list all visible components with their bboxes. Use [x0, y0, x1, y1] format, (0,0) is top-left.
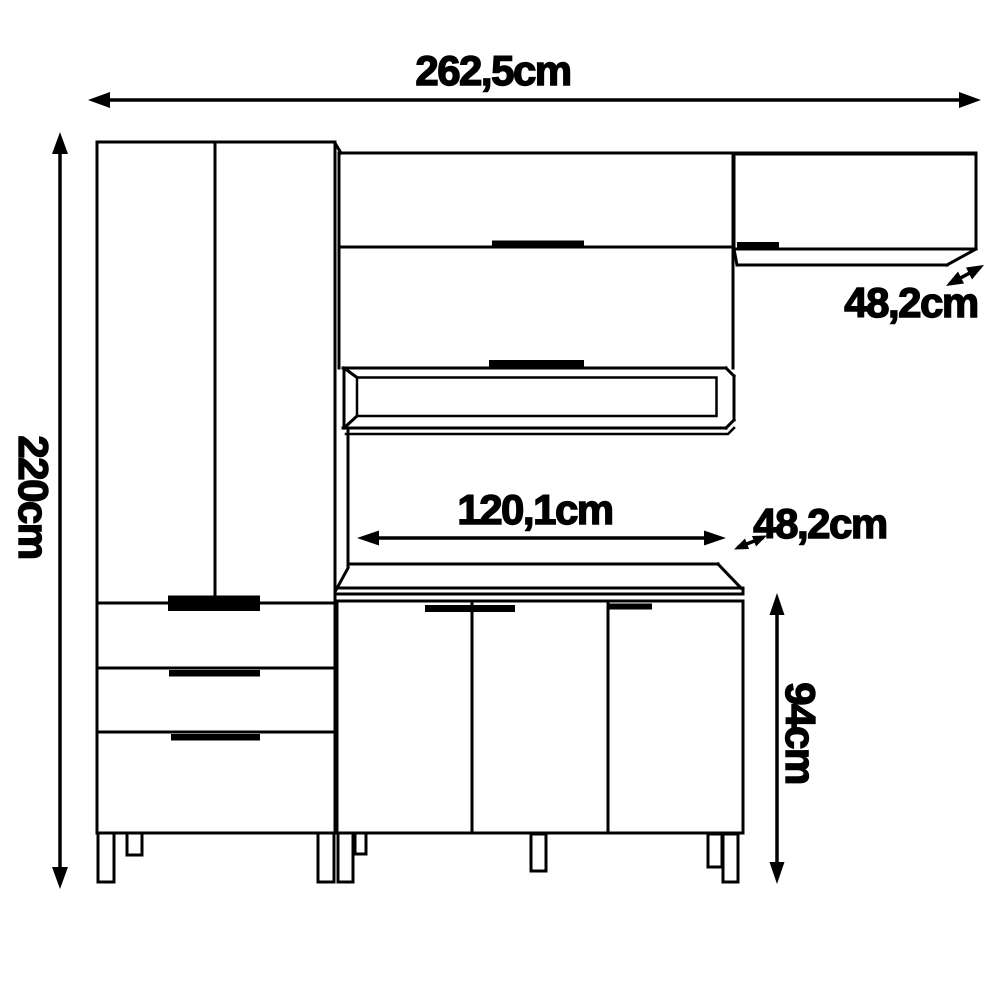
kitchen-cabinet-dimension-diagram: 262,5cm 220cm 48,2cm 120,1cm 48,2cm 94cm [0, 0, 1000, 1000]
corner-depth-label: 48,2cm [844, 282, 977, 324]
total-height-label: 220cm [12, 435, 54, 558]
base-cabinet-outline [337, 601, 743, 833]
tall-cabinet-drawer1-handle [168, 605, 260, 612]
base-cabinet-front-right-leg [723, 834, 738, 882]
tall-cabinet-rear-left-leg [127, 833, 142, 855]
total-width-arrow [88, 92, 981, 108]
backsplash-right-bevel [718, 564, 741, 588]
tall-cabinet-door-handle [168, 596, 260, 603]
wall-cabinet [339, 153, 733, 368]
base-cabinet-rear-right-leg [708, 834, 722, 867]
counter-depth-label: 48,2cm [753, 503, 886, 545]
tall-cabinet-drawer2-handle [169, 670, 260, 677]
base-cabinet-right-door-handle [608, 604, 652, 610]
base-cabinet-middle-leg [531, 834, 546, 871]
tall-cabinet-drawer3-handle [171, 734, 260, 741]
total-width-label: 262,5cm [415, 50, 570, 92]
corner-cabinet-underside-bevel [947, 249, 976, 265]
tall-cabinet-right-leg [318, 833, 334, 882]
niche-inner-box [357, 378, 717, 417]
tall-cabinet-front-left-leg [98, 833, 114, 882]
open-shelf-niche [343, 368, 734, 434]
base-cabinet-left-middle-door-handles [425, 605, 515, 612]
corner-cabinet-handle [737, 242, 779, 248]
base-cabinet-rear-left-leg [355, 833, 366, 854]
wall-cabinet-lower-door-handle [489, 360, 584, 367]
niche-bottom-left-bevel [344, 416, 357, 428]
base-cabinet [337, 601, 743, 833]
wall-cabinet-upper-door-handle [492, 241, 584, 248]
counter-width-label: 120,1cm [457, 489, 612, 531]
base-height-label: 94cm [779, 682, 821, 783]
cabinet-legs [98, 833, 738, 882]
corner-cabinet-outline [734, 154, 976, 249]
corner-wall-cabinet [733, 153, 976, 265]
base-cabinet-front-left-leg [338, 833, 353, 882]
tall-cabinet [97, 142, 341, 833]
